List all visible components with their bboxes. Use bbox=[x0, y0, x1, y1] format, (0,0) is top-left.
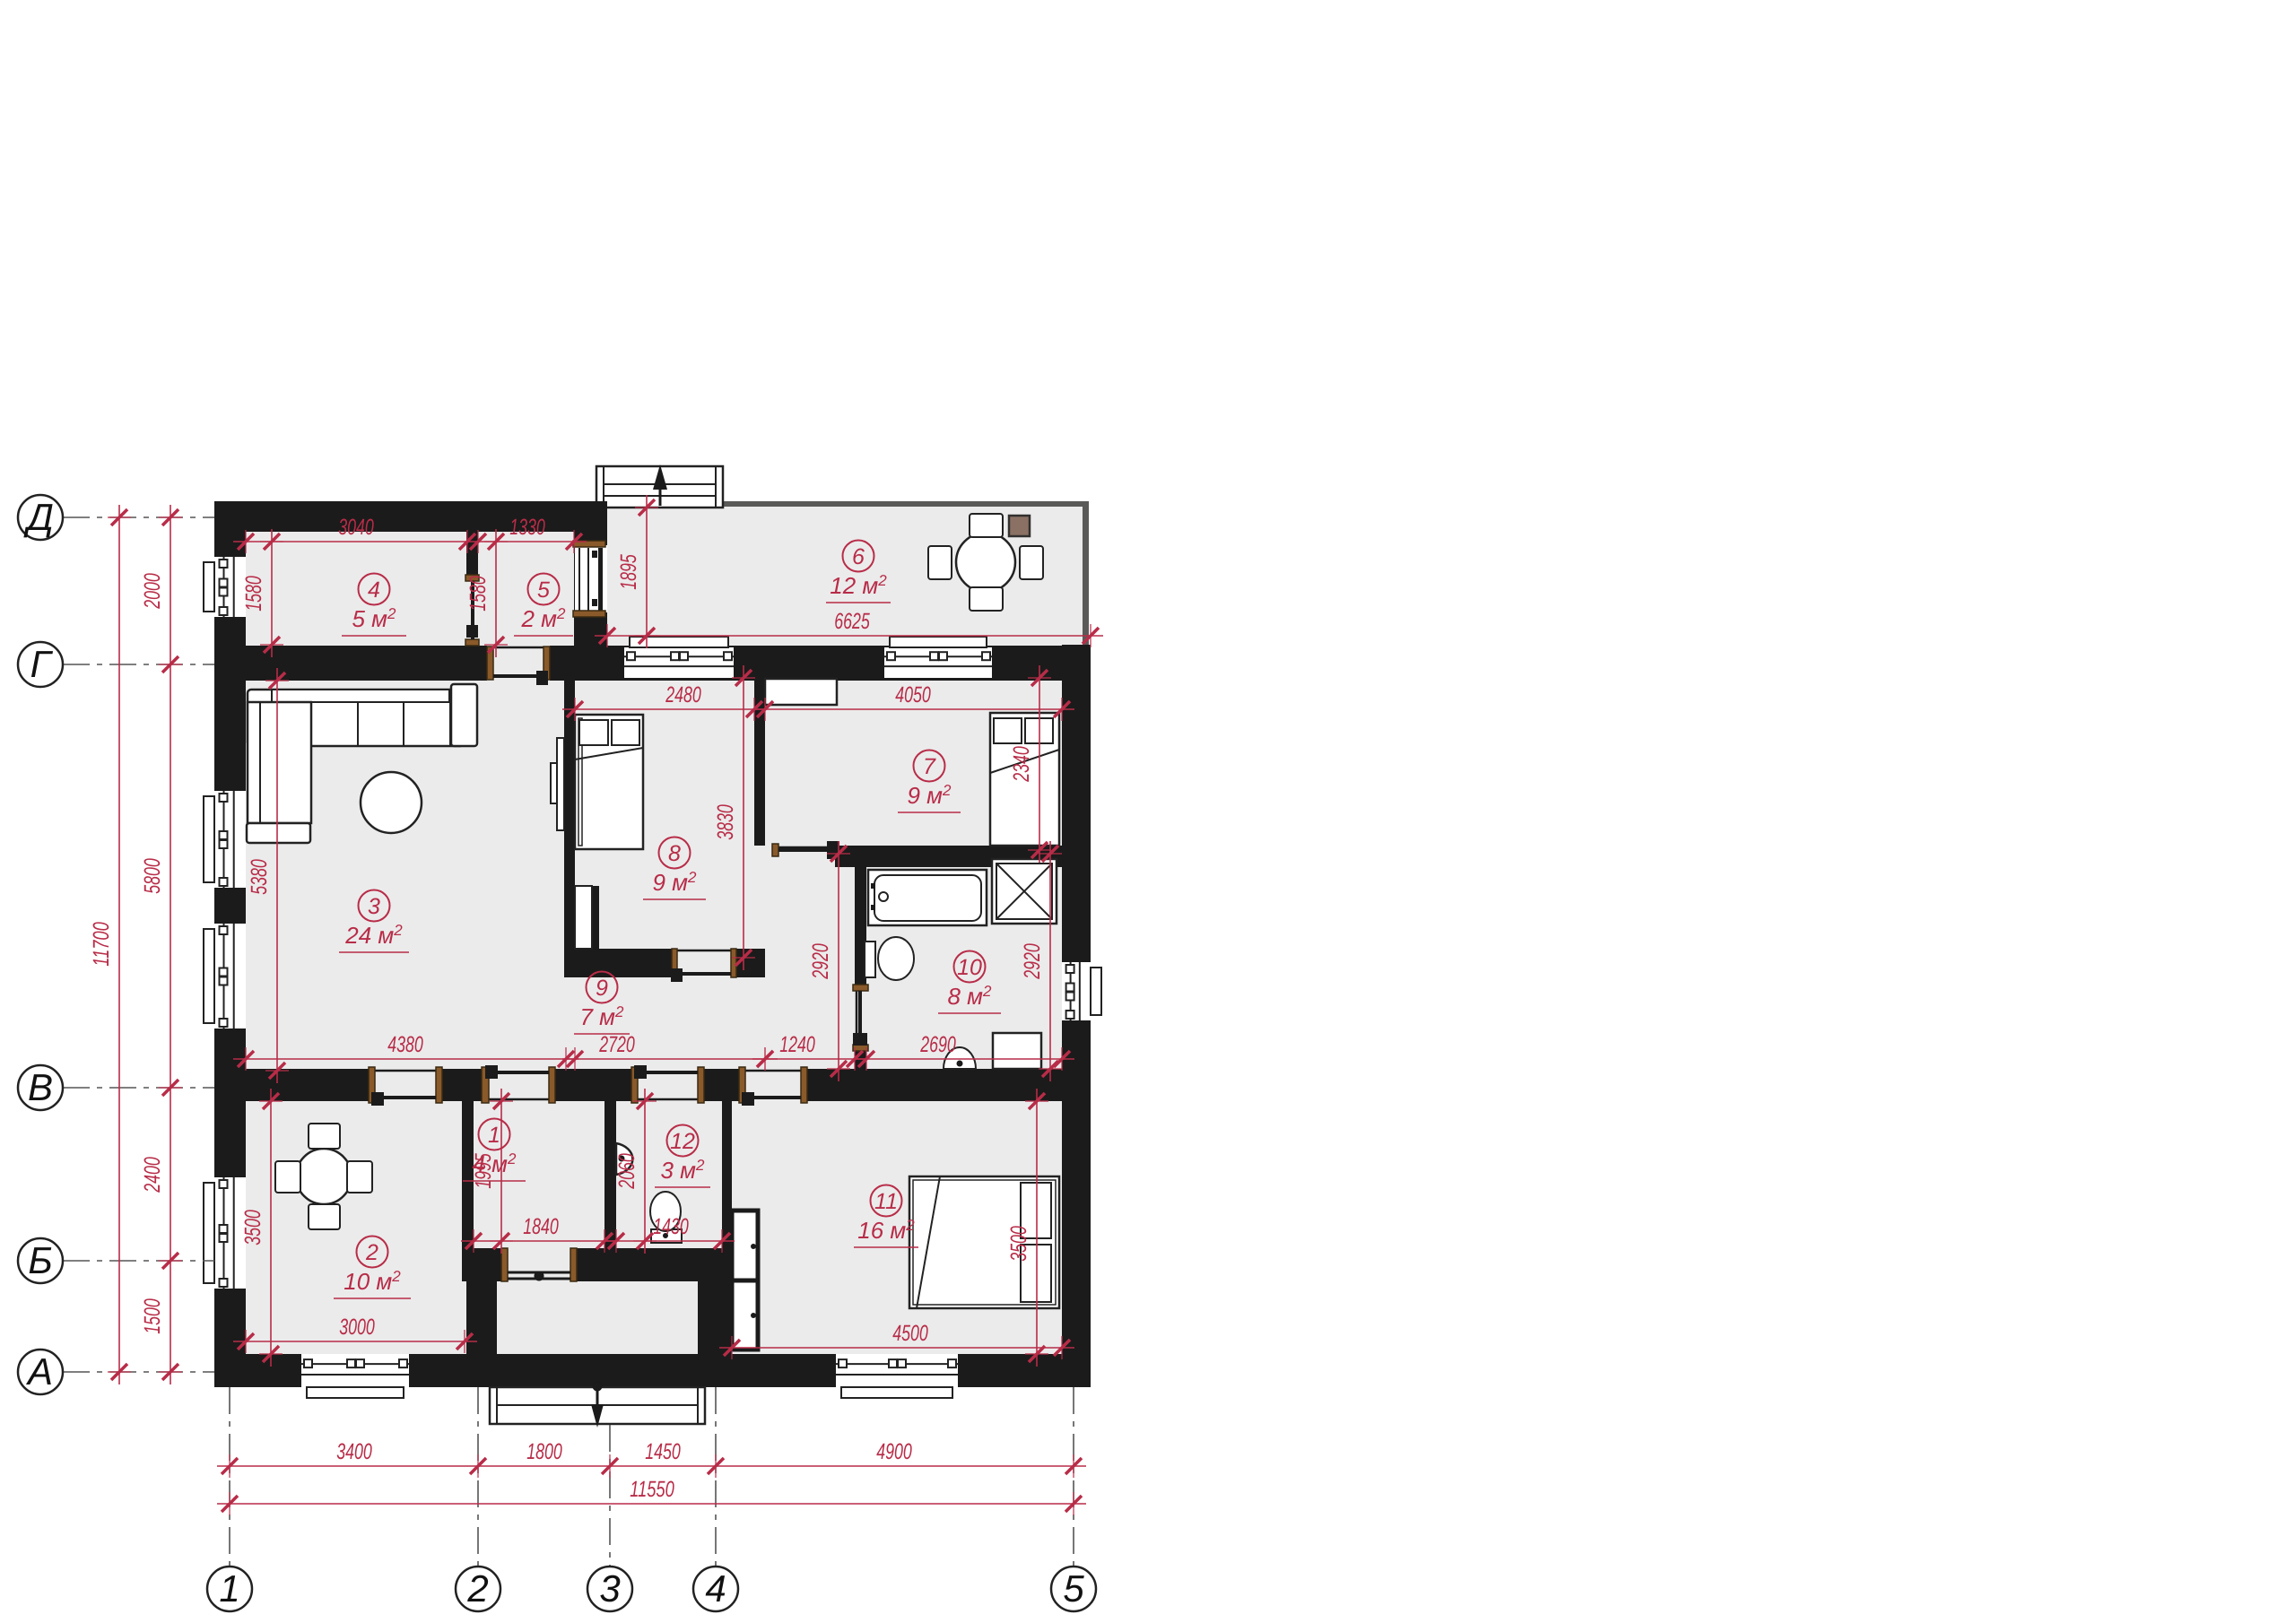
svg-text:3: 3 bbox=[599, 1567, 620, 1610]
svg-text:2: 2 bbox=[466, 1567, 488, 1610]
svg-text:1580: 1580 bbox=[241, 576, 266, 612]
svg-text:2690: 2690 bbox=[919, 1032, 955, 1057]
svg-text:6625: 6625 bbox=[834, 609, 870, 634]
svg-text:1800: 1800 bbox=[526, 1439, 562, 1464]
svg-text:1580: 1580 bbox=[465, 576, 491, 612]
svg-text:4380: 4380 bbox=[387, 1032, 423, 1057]
svg-text:3830: 3830 bbox=[713, 804, 738, 840]
svg-text:Б: Б bbox=[28, 1239, 52, 1281]
svg-text:1330: 1330 bbox=[509, 515, 545, 540]
svg-text:8: 8 bbox=[668, 841, 681, 866]
svg-text:3: 3 bbox=[368, 894, 380, 919]
svg-text:12: 12 bbox=[670, 1129, 695, 1154]
svg-text:2340: 2340 bbox=[1009, 746, 1034, 782]
svg-text:2400: 2400 bbox=[140, 1157, 165, 1193]
svg-text:3040: 3040 bbox=[338, 515, 374, 540]
svg-text:10: 10 bbox=[957, 955, 982, 980]
svg-text:2060: 2060 bbox=[614, 1153, 639, 1189]
svg-text:2720: 2720 bbox=[598, 1032, 634, 1057]
svg-text:11700: 11700 bbox=[89, 922, 114, 967]
svg-text:3500: 3500 bbox=[240, 1210, 265, 1245]
svg-text:4500: 4500 bbox=[892, 1321, 928, 1346]
svg-text:1: 1 bbox=[219, 1567, 239, 1610]
svg-text:1895: 1895 bbox=[616, 554, 641, 590]
svg-text:1240: 1240 bbox=[779, 1032, 815, 1057]
svg-text:1500: 1500 bbox=[140, 1298, 165, 1334]
svg-text:1450: 1450 bbox=[645, 1439, 681, 1464]
svg-text:2920: 2920 bbox=[808, 943, 833, 979]
svg-text:4: 4 bbox=[705, 1567, 726, 1610]
svg-text:7: 7 bbox=[923, 754, 936, 779]
svg-text:1: 1 bbox=[488, 1123, 500, 1148]
svg-text:1430: 1430 bbox=[653, 1214, 689, 1239]
svg-text:5800: 5800 bbox=[140, 858, 165, 894]
svg-text:Г: Г bbox=[30, 643, 54, 685]
svg-text:6: 6 bbox=[852, 544, 865, 569]
svg-text:3000: 3000 bbox=[339, 1315, 375, 1340]
svg-text:2: 2 bbox=[365, 1240, 378, 1265]
svg-text:2480: 2480 bbox=[665, 682, 700, 707]
svg-text:4: 4 bbox=[368, 577, 380, 603]
svg-text:1840: 1840 bbox=[523, 1214, 559, 1239]
svg-text:5380: 5380 bbox=[247, 859, 272, 895]
svg-text:3400: 3400 bbox=[336, 1439, 372, 1464]
svg-text:11550: 11550 bbox=[630, 1477, 674, 1502]
svg-text:5: 5 bbox=[1063, 1567, 1084, 1610]
svg-text:11: 11 bbox=[874, 1189, 898, 1214]
svg-text:9: 9 bbox=[596, 976, 608, 1001]
svg-text:4900: 4900 bbox=[876, 1439, 912, 1464]
svg-text:5: 5 bbox=[537, 577, 550, 603]
svg-text:2000: 2000 bbox=[140, 573, 165, 609]
svg-text:Д: Д bbox=[23, 496, 54, 538]
svg-text:4050: 4050 bbox=[895, 682, 931, 707]
svg-text:А: А bbox=[25, 1350, 53, 1393]
svg-text:3500: 3500 bbox=[1006, 1226, 1031, 1262]
svg-text:2920: 2920 bbox=[1020, 943, 1045, 979]
svg-text:В: В bbox=[28, 1066, 53, 1108]
